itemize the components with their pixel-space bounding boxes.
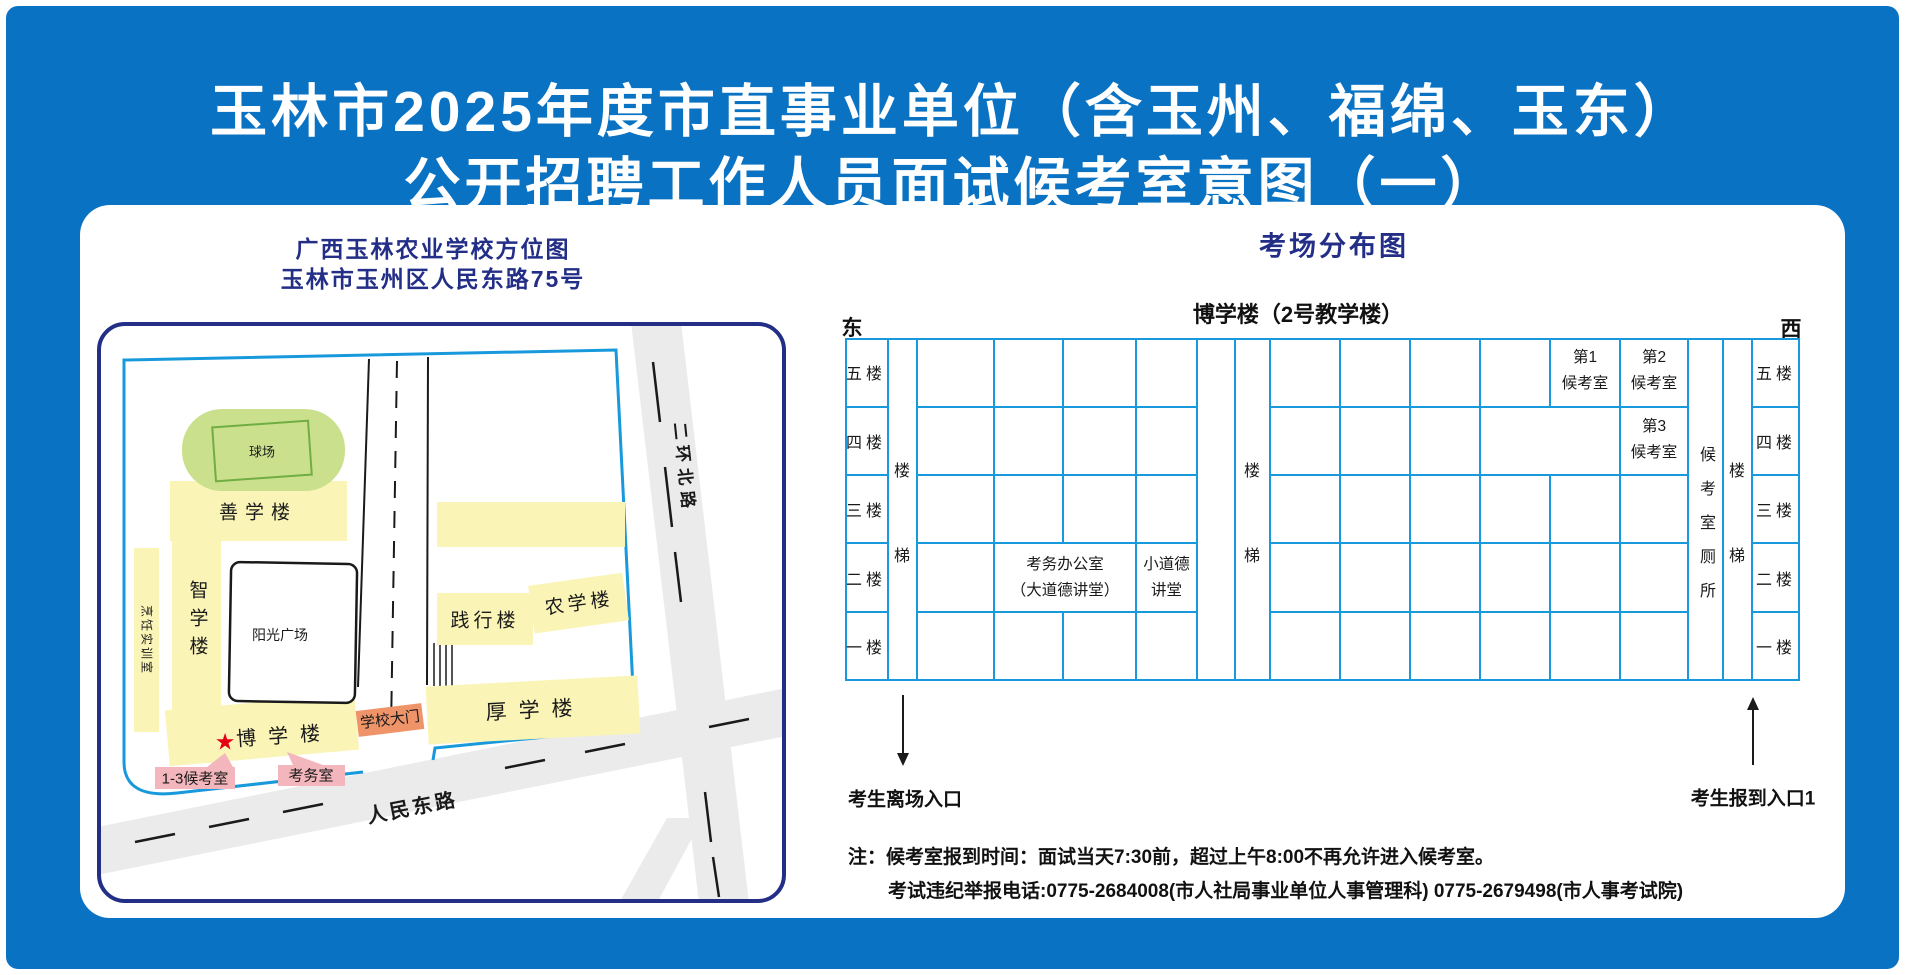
- floor-label-left-1: 一楼: [846, 634, 886, 658]
- grid-hline: [1270, 611, 1688, 613]
- grid-vline: [1269, 338, 1271, 681]
- exam-office-callout-label: 考务室: [288, 765, 333, 786]
- grid-vline: [1722, 338, 1724, 681]
- small-hall-line1: 小道德: [1137, 552, 1196, 578]
- exit-arrow-line: [902, 695, 904, 753]
- grid-vline: [993, 338, 995, 681]
- grid-hline: [917, 611, 1197, 613]
- floor-label-left-5: 五楼: [846, 360, 886, 384]
- erhuan-road-shape: [631, 322, 749, 903]
- floor-label-left-4: 四楼: [846, 429, 886, 453]
- grid-vline-segment: [1062, 612, 1064, 681]
- poster-title-line1: 玉林市2025年度市直事业单位（含玉州、福绵、玉东）: [0, 66, 1905, 148]
- stair-middle-char-top: 楼: [1244, 457, 1260, 481]
- exam-layout-title: 考场分布图: [1259, 225, 1409, 264]
- small-hall: 小道德 讲堂: [1137, 552, 1196, 604]
- entry-arrow-line: [1752, 709, 1754, 765]
- houxue-building-label: 厚学楼: [485, 691, 585, 726]
- grid-vline: [916, 338, 918, 681]
- floor-label-right-2: 二楼: [1756, 566, 1796, 590]
- stair-middle-char-bottom: 梯: [1244, 542, 1260, 566]
- campus-map-title-line2: 玉林市玉州区人民东路75号: [281, 260, 586, 294]
- waiting-room-1-line1: 第1: [1551, 345, 1619, 371]
- grid-vline: [1687, 338, 1689, 681]
- grid-hline: [1270, 406, 1688, 408]
- grid-vline: [1479, 338, 1481, 681]
- waiting-rooms-callout-label: 1-3候考室: [162, 768, 229, 789]
- grid-vline: [1751, 338, 1753, 681]
- stair-right-char-top: 楼: [1729, 457, 1745, 481]
- stair-left-char-top: 楼: [894, 457, 910, 481]
- grid-hline: [845, 474, 888, 476]
- waiting-room-3-line2: 候考室: [1621, 440, 1687, 466]
- grid-hline: [1752, 611, 1800, 613]
- ball-field-label: 球场: [249, 442, 275, 461]
- sunshine-plaza-label: 阳光广场: [252, 625, 308, 645]
- floor-label-left-3: 三楼: [846, 497, 886, 521]
- stair-right-char-bottom: 梯: [1729, 542, 1745, 566]
- grid-vline: [1196, 338, 1198, 681]
- grid-hline: [917, 474, 1197, 476]
- exam-affairs-office-line2: （大道德讲堂）: [995, 578, 1135, 604]
- waiting-room-3-line1: 第3: [1621, 414, 1687, 440]
- exam-building-label: 博学楼（2号教学楼）: [1193, 297, 1403, 329]
- floor-label-right-3: 三楼: [1756, 497, 1796, 521]
- poster: 玉林市2025年度市直事业单位（含玉州、福绵、玉东） 公开招聘工作人员面试候考室…: [0, 0, 1905, 975]
- grid-hline: [1270, 474, 1688, 476]
- floor-label-left-2: 二楼: [846, 566, 886, 590]
- grid-vline-segment: [1549, 475, 1551, 681]
- unlabeled-building-shape: [437, 502, 625, 547]
- grid-vline: [887, 338, 889, 681]
- small-hall-line2: 讲堂: [1137, 578, 1196, 604]
- shanxue-building-label: 善学楼: [219, 498, 297, 525]
- exit-entrance-label: 考生离场入口: [848, 785, 962, 812]
- exam-affairs-office: 考务办公室 （大道德讲堂）: [995, 552, 1135, 604]
- grid-vline: [1234, 338, 1236, 681]
- grid-vline: [1409, 338, 1411, 681]
- boxue-star-icon: ★: [215, 729, 236, 756]
- waiting-room-1: 第1 候考室: [1551, 345, 1619, 397]
- stair-left-char-bottom: 梯: [894, 542, 910, 566]
- grid-vline: [1339, 338, 1341, 681]
- zhixue-building-label: 智学楼: [184, 580, 211, 664]
- grid-hline: [1752, 474, 1800, 476]
- note-line1: 注：候考室报到时间：面试当天7:30前，超过上午8:00不再允许进入候考室。: [848, 842, 1494, 869]
- grid-hline: [845, 406, 888, 408]
- grid-vline-segment: [1062, 338, 1064, 543]
- jianxing-building-label: 践行楼: [450, 606, 519, 633]
- grid-hline: [845, 611, 888, 613]
- grid-hline: [917, 542, 1197, 544]
- waiting-room-2-line2: 候考室: [1621, 371, 1687, 397]
- grid-hline: [845, 542, 888, 544]
- grid-hline: [917, 406, 1197, 408]
- waiting-room-2: 第2 候考室: [1621, 345, 1687, 397]
- waiting-room-2-line1: 第2: [1621, 345, 1687, 371]
- cooking-room-label: 烹饪实训室: [139, 605, 156, 675]
- exit-arrow-head-icon: [897, 753, 909, 766]
- grid-vline: [1135, 338, 1137, 681]
- grid-hline: [1752, 542, 1800, 544]
- campus-map-title-line1: 广西玉林农业学校方位图: [296, 230, 571, 264]
- floor-label-right-1: 一楼: [1756, 634, 1796, 658]
- entry-entrance-label: 考生报到入口1: [1691, 784, 1816, 811]
- road-branch-shape: [619, 818, 703, 903]
- campus-map: 球场 善学楼 智学楼 烹饪实训室 阳光广场 践行楼 农学楼 厚学楼 ★ 博学楼 …: [97, 322, 786, 903]
- grid-hline: [1752, 406, 1800, 408]
- note-line2: 考试违纪举报电话:0775-2684008(市人社局事业单位人事管理科) 077…: [888, 876, 1683, 903]
- floor-label-right-5: 五楼: [1756, 360, 1796, 384]
- floor-label-right-4: 四楼: [1756, 429, 1796, 453]
- waiting-room-1-line2: 候考室: [1551, 371, 1619, 397]
- waiting-room-3: 第3 候考室: [1621, 414, 1687, 466]
- grid-hline: [1270, 542, 1688, 544]
- exam-affairs-office-line1: 考务办公室: [995, 552, 1135, 578]
- wc-label: 候考室厕所: [1693, 446, 1717, 616]
